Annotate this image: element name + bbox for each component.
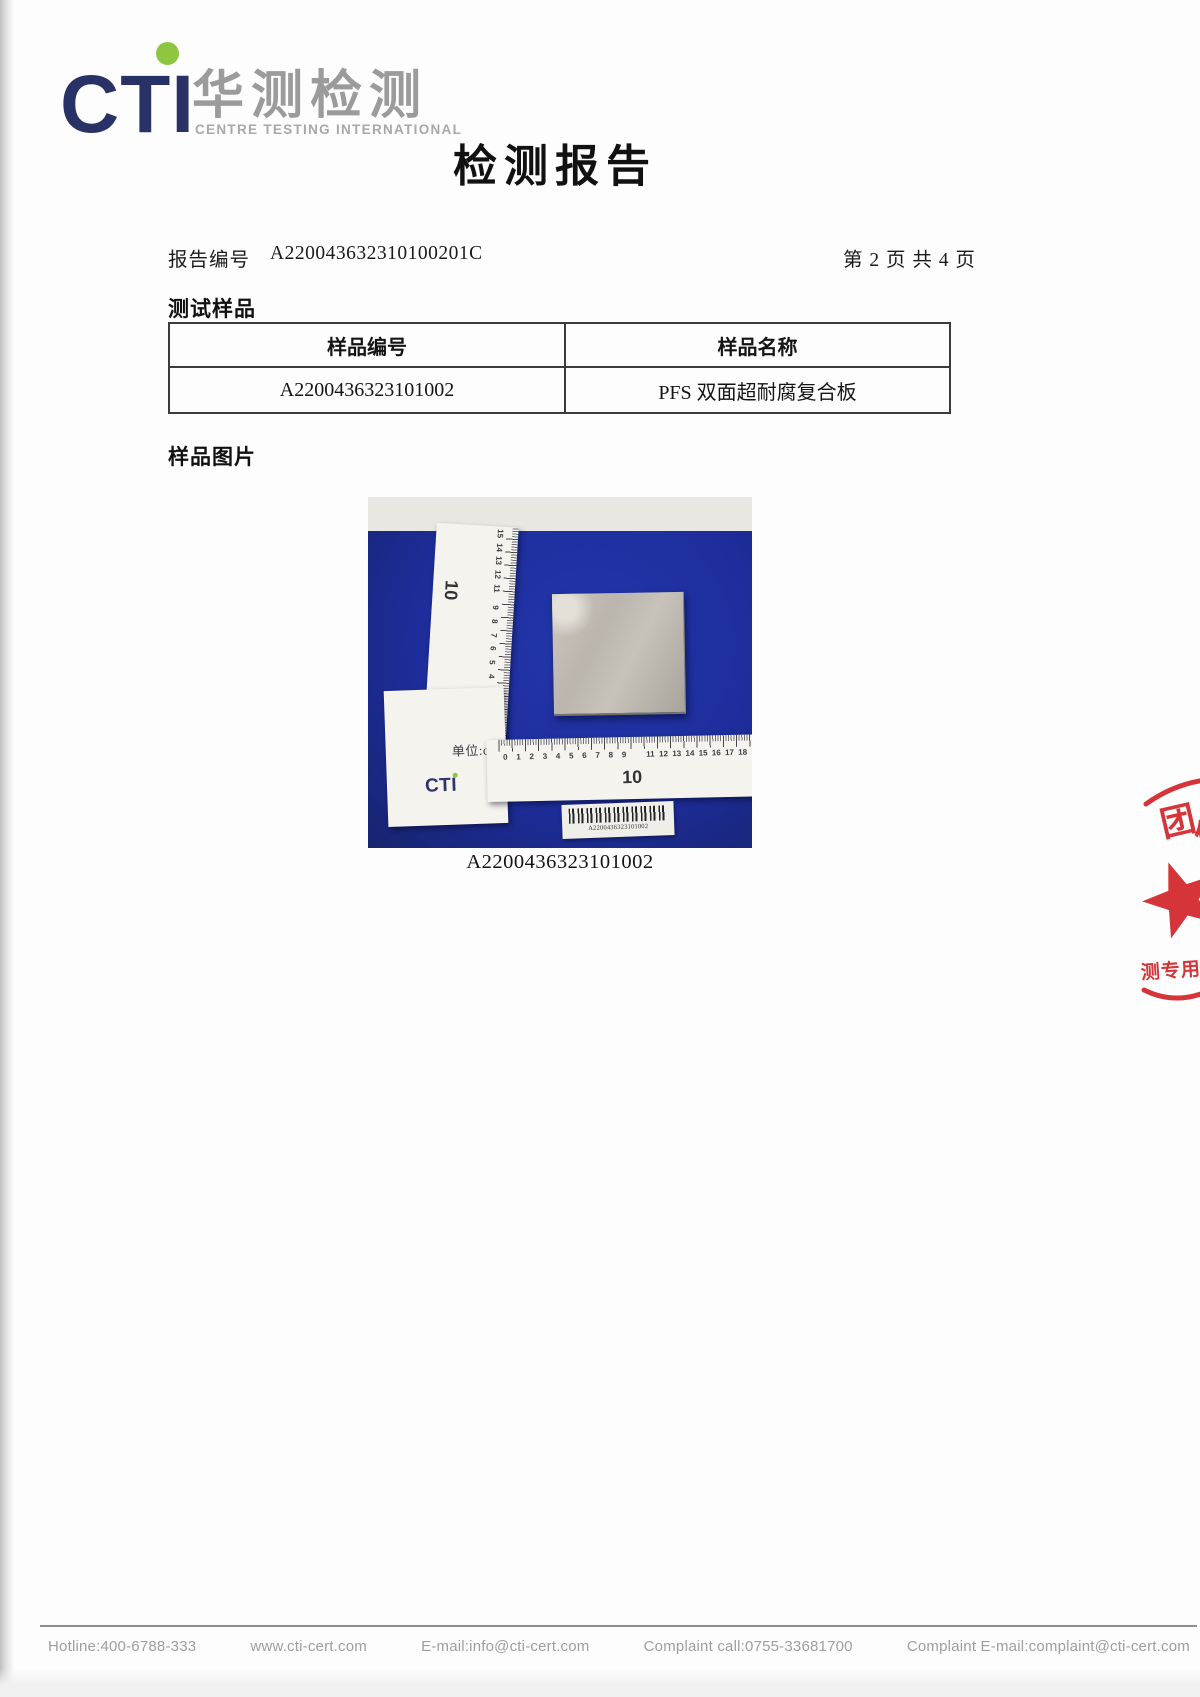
stamp-bottom-arc [1144,990,1200,998]
hnum: 14 [683,749,696,758]
footer-item: Complaint call:0755-33681700 [644,1638,853,1655]
table-header-sample-name: 样品名称 [565,323,950,367]
vnum: 12 [493,570,502,579]
section-heading-test-sample: 测试样品 [168,293,256,323]
horizontal-ruler: 0123456789111213141516171819 10 20 [486,734,752,802]
hnum: 3 [538,752,551,761]
section-heading-sample-photo: 样品图片 [168,441,256,471]
logo-green-dot-icon [156,42,179,65]
hnum: 4 [551,751,564,760]
hnum: 15 [696,748,709,757]
barcode-icon [569,805,667,823]
footer-divider [40,1625,1197,1627]
hnum: 13 [670,749,683,758]
report-number-row: 报告编号 A220043632310100201C 第 2 页 共 4 页 [168,243,978,269]
ruler-brand-dot-icon [453,773,458,778]
sample-photo: 15141312119876543210 10 单位:cm CTI 012345… [368,497,752,848]
vnum: 14 [494,543,503,552]
hnum [630,750,643,759]
stamp-top-arc [1146,780,1200,804]
vnum: 15 [495,529,504,538]
vertical-ruler-big-10: 10 [440,580,462,601]
horizontal-ruler-big-20: 20 [749,764,752,786]
report-page: CTI 华测检测 CENTRE TESTING INTERNATIONAL 检测… [0,0,1200,1697]
table-header-row: 样品编号 样品名称 [169,323,950,367]
footer-item: E-mail:info@cti-cert.com [421,1638,589,1655]
table-cell-sample-name: PFS 双面超耐腐复合板 [565,367,950,413]
footer-contact-row: Hotline:400-6788-333www.cti-cert.comE-ma… [48,1638,1190,1655]
hnum: 5 [565,751,578,760]
hnum: 7 [591,751,604,760]
vnum: 9 [491,605,499,610]
hnum: 16 [710,748,723,757]
table-row: A2200436323101002 PFS 双面超耐腐复合板 [169,367,950,413]
scan-bottom-shade [0,1668,1200,1697]
hnum: 1 [512,752,525,761]
barcode-label: A2200436323101002 [561,801,674,839]
hnum: 18 [736,748,749,757]
report-number-label: 报告编号 [168,243,250,272]
hnum: 17 [723,748,736,757]
barcode-text: A2200436323101002 [562,822,674,833]
hnum: 11 [644,749,657,758]
document-title: 检测报告 [0,130,1110,194]
photo-top-highlight [368,497,752,531]
vnum: 8 [490,619,498,624]
table-header-sample-id: 样品编号 [169,323,565,367]
photo-caption: A2200436323101002 [368,851,752,874]
stamp-bottom-text: 测专用 [1140,957,1200,984]
hnum: 12 [657,749,670,758]
scan-edge-shadow [0,0,14,1697]
footer-item: Hotline:400-6788-333 [48,1638,196,1655]
ruler-brand-logo: CTI [425,775,458,798]
sample-table: 样品编号 样品名称 A2200436323101002 PFS 双面超耐腐复合板 [168,322,951,414]
stamp-seal: 团 体 测专用 [1120,728,1200,1012]
ruler-brand-text: CTI [425,775,458,797]
vnum: 4 [486,674,494,679]
hnum: 19 [749,747,752,756]
sample-plate [552,592,686,716]
hnum: 8 [604,750,617,759]
vnum: 6 [488,646,496,651]
hnum: 9 [617,750,630,759]
hnum: 6 [578,751,591,760]
logo-chinese-name: 华测检测 [192,70,428,122]
vnum: 5 [487,660,495,665]
vnum: 13 [493,556,502,565]
page-indicator: 第 2 页 共 4 页 [843,243,976,272]
stamp-star-icon [1133,849,1200,943]
footer-item: www.cti-cert.com [250,1638,367,1655]
vnum: 7 [489,633,497,638]
footer-item: Complaint E-mail:complaint@cti-cert.com [907,1638,1190,1655]
report-number-value: A220043632310100201C [270,243,483,265]
hnum: 2 [525,752,538,761]
vnum: 11 [492,584,501,593]
hnum: 0 [499,753,512,762]
horizontal-ruler-big-10: 10 [617,767,647,789]
table-cell-sample-id: A2200436323101002 [169,367,565,413]
